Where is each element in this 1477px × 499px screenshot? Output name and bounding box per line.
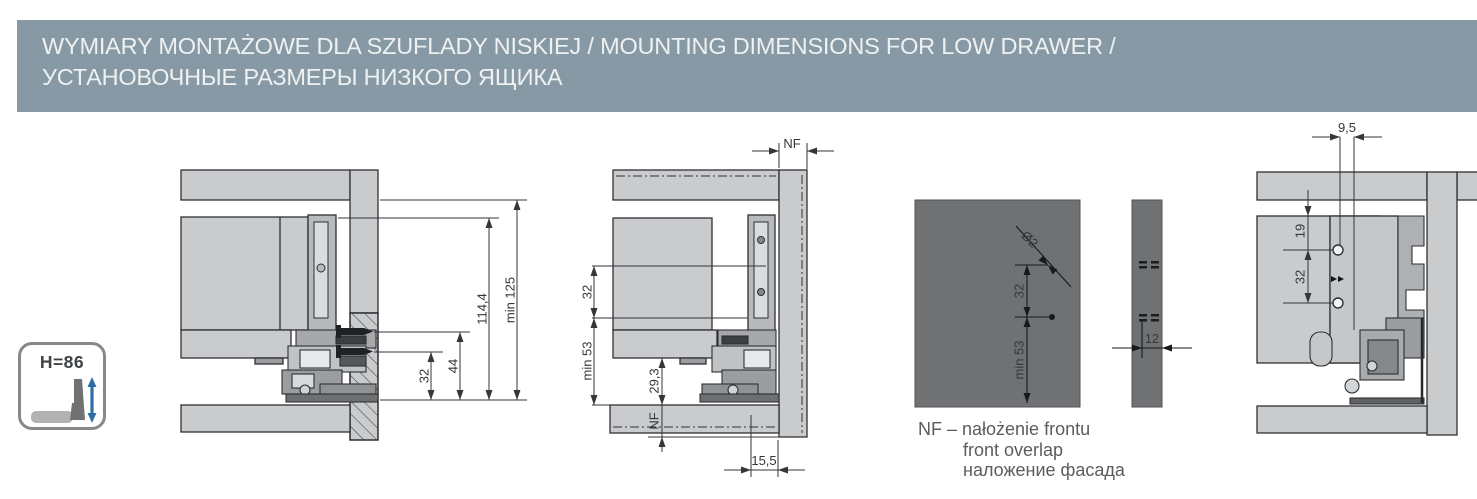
dim-label-nf-bottom: NF	[646, 412, 661, 429]
dim-label-19: 19	[1292, 224, 1307, 238]
dim-label-44: 44	[445, 359, 460, 373]
dim-label-min53c: min 53	[1011, 340, 1026, 379]
cabinet-bottom-panel	[181, 405, 350, 432]
drawing-front-panel: Ø2 32 min 53 12	[915, 200, 1192, 407]
nf-legend-line-2: front overlap	[918, 440, 1125, 461]
cabinet-side-panel-d	[1427, 172, 1457, 435]
drawing-bracket-section: 9,5 19 32	[1257, 120, 1477, 435]
front-panel-edge-view	[1132, 200, 1162, 407]
front-panel-face	[915, 200, 1080, 407]
dim-label-32a: 32	[416, 369, 431, 383]
dim-label-32c: 32	[1011, 284, 1026, 298]
nf-legend: NF – nałożenie frontu front overlap нало…	[918, 419, 1125, 481]
slide-profile-b	[748, 215, 775, 332]
nf-legend-line-3: наложение фасада	[918, 460, 1125, 481]
drawing-side-section: min 125 114,4 44 32	[181, 170, 527, 440]
dim-label-nf-top: NF	[783, 136, 800, 151]
slide-profile	[308, 215, 336, 332]
drawer-box-b	[613, 218, 712, 330]
cabinet-top-panel-b	[613, 170, 779, 200]
drawer-bottom-glyph	[31, 411, 73, 423]
cabinet-bottom-panel-d	[1257, 406, 1427, 433]
dim-label-95: 9,5	[1338, 120, 1356, 135]
drawer-side-glyph	[70, 379, 85, 420]
page: WYMIARY MONTAŻOWE DLA SZUFLADY NISKIEJ /…	[0, 0, 1477, 499]
front-panel-b	[779, 170, 807, 437]
dim-label-114: 114,4	[474, 293, 489, 325]
dim-label-32d: 32	[1292, 270, 1307, 284]
nf-legend-line-1: NF – nałożenie frontu	[918, 419, 1125, 440]
dim-label-155: 15,5	[751, 453, 776, 468]
slide-mechanism	[282, 330, 378, 402]
mounting-hole-lower	[1333, 298, 1343, 308]
height-arrow-icon	[88, 377, 97, 423]
dim-label-12: 12	[1145, 332, 1159, 346]
drawer-profile-icon	[21, 373, 103, 425]
dim-label-min53b: min 53	[579, 341, 594, 380]
cabinet-bottom-panel-b	[610, 405, 779, 433]
drawer-height-badge: H=86	[18, 342, 106, 430]
mounting-hole-upper	[1333, 245, 1343, 255]
dim-label-32b: 32	[579, 285, 594, 299]
dim-label-min125: min 125	[502, 277, 517, 323]
front-panel-upper	[350, 170, 378, 313]
drawer-height-label: H=86	[21, 352, 103, 373]
drawing-front-section: NF 32 min 53 29,3 NF 15,5	[579, 136, 834, 477]
technical-drawings: min 125 114,4 44 32	[0, 0, 1477, 499]
dim-label-293: 29,3	[646, 368, 661, 393]
cabinet-top-panel-d	[1257, 172, 1427, 200]
drawer-box	[181, 217, 308, 330]
cabinet-top-panel	[181, 170, 350, 200]
